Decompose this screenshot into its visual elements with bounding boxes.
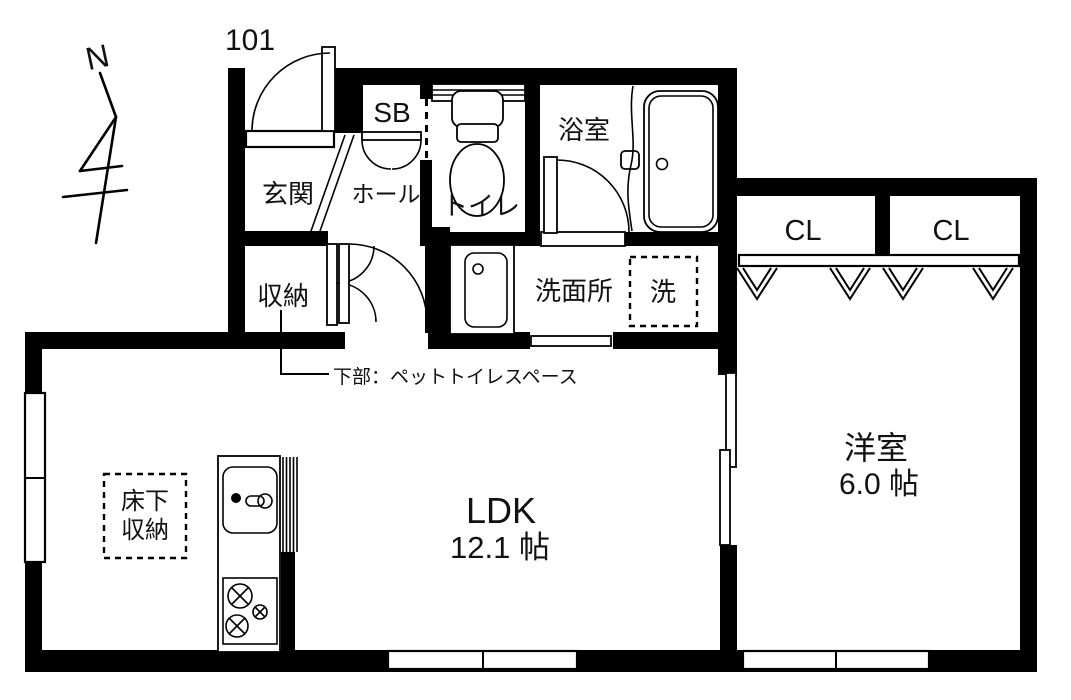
wall-ldk-top-left — [25, 332, 345, 349]
wall-toilet-bath — [525, 85, 540, 232]
label-underfloor-2: 収納 — [121, 517, 169, 544]
label-western-size: 6.0 帖 — [839, 468, 919, 501]
north-arrow — [63, 73, 127, 243]
ldk-western-sliding-door — [720, 373, 736, 545]
label-hall: ホール — [352, 181, 421, 207]
wall-entry-left — [228, 68, 245, 349]
wall-closet-divider — [875, 196, 890, 263]
hall-ldk-door — [339, 244, 427, 323]
wall-toilet-left — [420, 160, 432, 232]
sink-drain — [231, 493, 241, 503]
wall-toilet-left-stub — [420, 85, 432, 99]
label-western: 洋室 — [844, 430, 908, 466]
genkan-step-line — [311, 135, 354, 231]
label-ldk: LDK — [466, 490, 536, 531]
storage-double-doors — [327, 244, 376, 325]
label-shoebox: SB — [373, 97, 410, 128]
ldk-bottom-window — [388, 651, 577, 669]
label-closet-left: CL — [784, 215, 821, 247]
bath-threshold — [541, 232, 625, 246]
label-closet-right: CL — [932, 215, 969, 247]
unit-number: 101 — [225, 24, 275, 57]
washroom-sliding-door — [531, 336, 611, 346]
floor-plan: N 101 玄関 ホール SB トイレ 浴室 洗面所 洗 収納 CL CL LD… — [0, 0, 1071, 700]
north-label: N — [82, 37, 112, 77]
label-bathroom: 浴室 — [558, 115, 610, 145]
vanity-sink — [450, 245, 514, 334]
wall-east-column-upper — [718, 68, 737, 375]
label-washroom: 洗面所 — [535, 276, 613, 306]
bathroom-door — [544, 157, 629, 233]
shoebox-doors — [362, 132, 421, 169]
label-ldk-size: 12.1 帖 — [450, 530, 550, 565]
western-room-window — [743, 651, 929, 669]
entrance-door — [252, 47, 335, 131]
entrance-threshold — [246, 131, 334, 147]
label-laundry: 洗 — [650, 277, 676, 307]
wall-genkan-storage-divider — [228, 231, 328, 246]
bathtub — [644, 91, 718, 232]
floor-plan-svg: N 101 玄関 ホール SB トイレ 浴室 洗面所 洗 収納 CL CL LD… — [0, 0, 1071, 700]
wall-hall-vanity — [425, 227, 450, 333]
wall-right — [1020, 178, 1037, 672]
label-toilet: トイレ — [442, 191, 520, 221]
label-underfloor-1: 床下 — [121, 488, 169, 515]
storage-note-text: 下部：ペットトイレスペース — [333, 366, 578, 388]
wall-top — [363, 68, 737, 85]
label-genkan: 玄関 — [262, 179, 314, 209]
counter-hatch — [283, 457, 297, 552]
label-storage: 収納 — [257, 281, 309, 311]
wall-closet-top — [735, 178, 1037, 196]
ldk-left-window — [25, 393, 45, 562]
closet-bifold-doors — [737, 255, 1019, 299]
underfloor-storage-box — [104, 474, 186, 558]
wall-kitchen-stub — [281, 552, 295, 652]
